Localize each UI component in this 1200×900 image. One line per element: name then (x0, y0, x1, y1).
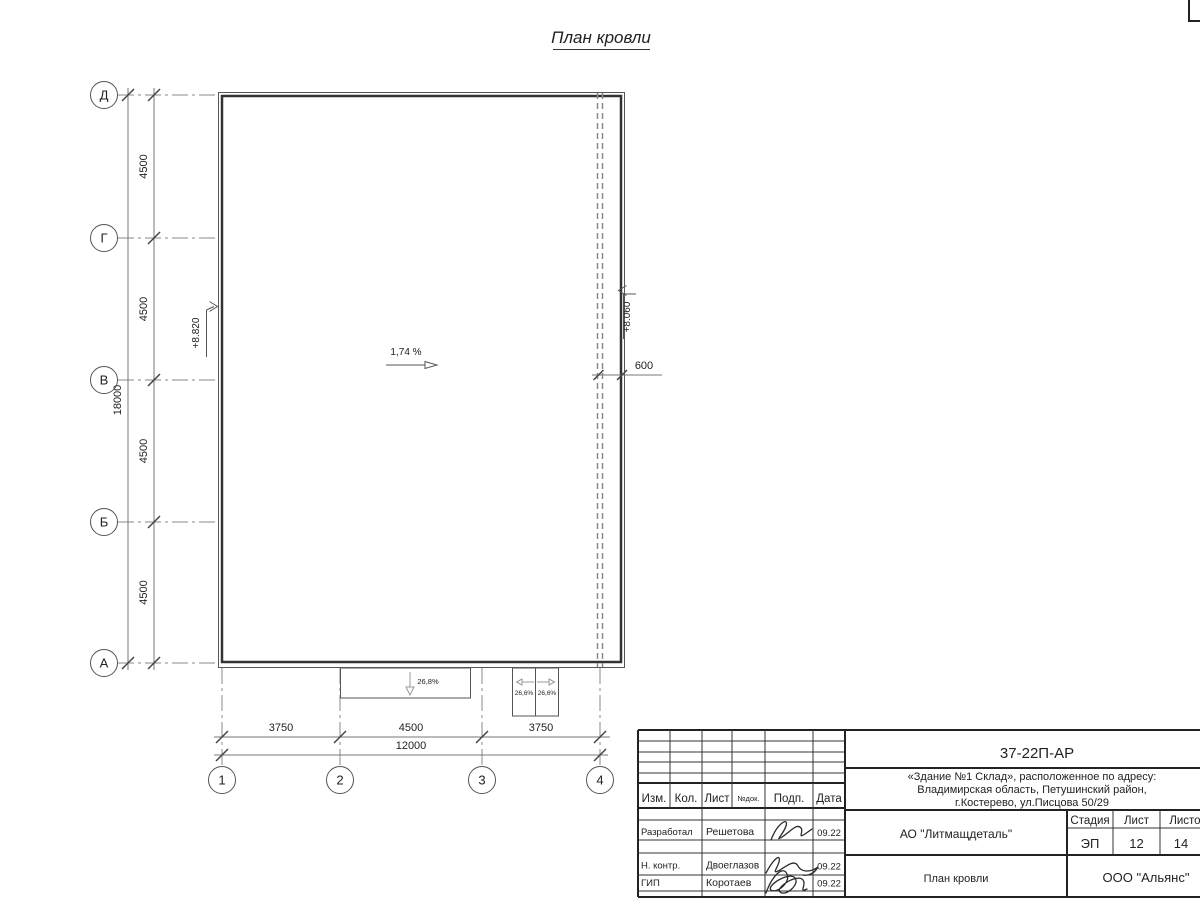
page-title: План кровли (551, 28, 651, 47)
tb-sheet-label: Лист (1124, 815, 1150, 827)
canopy-slope-label: 26,8% (417, 677, 439, 686)
block-slope-left-label: 26,6% (515, 690, 534, 697)
roof-edge-dashed-lines (598, 93, 603, 667)
dim-col-total: 12000 (396, 740, 427, 752)
tb-role-3: ГИП (641, 878, 660, 889)
tb-date-2: 09.22 (817, 862, 841, 873)
dim-row-1: 4500 (138, 154, 150, 178)
dim-row-3: 4500 (138, 439, 150, 463)
tb-role-2: Н. контр. (641, 861, 680, 872)
slope-block: 26,6% 26,6% (513, 668, 559, 716)
title-block: Изм. Кол. Лист №док. Подп. Дата Разработ… (638, 730, 1200, 897)
tb-address-line3: г.Костерево, ул.Писцова 50/29 (955, 797, 1109, 809)
signature-dvoeglazov (766, 858, 818, 876)
tb-address-line1: «Здание №1 Склад», расположенное по адре… (908, 771, 1157, 783)
canopy: 26,8% (341, 668, 471, 698)
tb-name-2: Двоеглазов (706, 861, 759, 872)
axis-col-label-3: 3 (478, 773, 485, 788)
tb-name-1: Решетова (706, 826, 754, 838)
tb-date-1: 09.22 (817, 828, 841, 839)
dim-col-1: 3750 (269, 722, 293, 734)
dim-row-4: 4500 (138, 580, 150, 604)
signature-reshetova (771, 822, 812, 840)
tb-name-3: Коротаев (706, 877, 752, 889)
tb-date-3: 09.22 (817, 879, 841, 890)
elevation-left-label: +8.820 (191, 317, 202, 348)
parapet-dim-label: 600 (635, 360, 653, 372)
main-slope-label: 1,74 % (390, 347, 421, 358)
drawing-canvas: План кровли 26,8% 26,6% (0, 0, 1200, 900)
drawing-sheet: План кровли 26,8% 26,6% (0, 0, 1200, 900)
axis-bubbles-cols: 1 2 3 4 (209, 767, 614, 794)
tb-sheet-value: 12 (1129, 836, 1143, 851)
tb-header-podp: Подп. (774, 793, 805, 805)
signature-korotaev (766, 871, 807, 893)
axis-row-label-g: Г (100, 231, 107, 246)
tb-header-data: Дата (816, 793, 842, 805)
dim-row-2: 4500 (138, 297, 150, 321)
main-slope-annotation: 1,74 % (386, 347, 437, 369)
axis-col-label-2: 2 (336, 773, 343, 788)
axis-col-label-4: 4 (596, 773, 603, 788)
tb-stage-label: Стадия (1070, 815, 1109, 827)
elevation-mark-left: +8.820 (191, 302, 218, 358)
tb-sheets-label: Листов (1169, 815, 1200, 827)
dim-col-2: 4500 (399, 722, 423, 734)
axis-row-label-v: В (100, 373, 109, 388)
tb-address-line2: Владимирская область, Петушинский район, (917, 784, 1146, 796)
tb-role-1: Разработал (641, 827, 693, 838)
tb-sheets-value: 14 (1174, 836, 1188, 851)
dimension-left-4500-chain: 4500 4500 4500 4500 (138, 88, 160, 670)
tb-stage-value: ЭП (1081, 836, 1100, 851)
grid-axis-lines (118, 95, 600, 765)
dim-col-3: 3750 (529, 722, 553, 734)
frame-corner (1189, 0, 1200, 21)
tb-sheet-title: План кровли (924, 873, 989, 885)
building-outline (219, 93, 625, 668)
tb-header-list: Лист (705, 793, 731, 805)
axis-col-label-1: 1 (218, 773, 225, 788)
block-slope-right-label: 26,6% (538, 690, 557, 697)
tb-header-ndok: №док. (738, 794, 760, 803)
axis-bubbles-rows: Д Г В Б А (91, 82, 118, 677)
tb-header-kol: Кол. (675, 793, 698, 805)
axis-row-label-a: А (100, 656, 109, 671)
tb-company: ООО "Альянс" (1103, 870, 1190, 885)
dimension-bottom-total: 12000 (214, 740, 608, 761)
tb-client: АО "Литмащдеталь" (900, 827, 1012, 841)
axis-row-label-d: Д (100, 88, 109, 103)
axis-row-label-b: Б (100, 515, 109, 530)
tb-doc-number: 37-22П-АР (1000, 745, 1074, 762)
tb-header-izm: Изм. (642, 793, 667, 805)
dimension-left-total: 18000 (112, 88, 134, 670)
